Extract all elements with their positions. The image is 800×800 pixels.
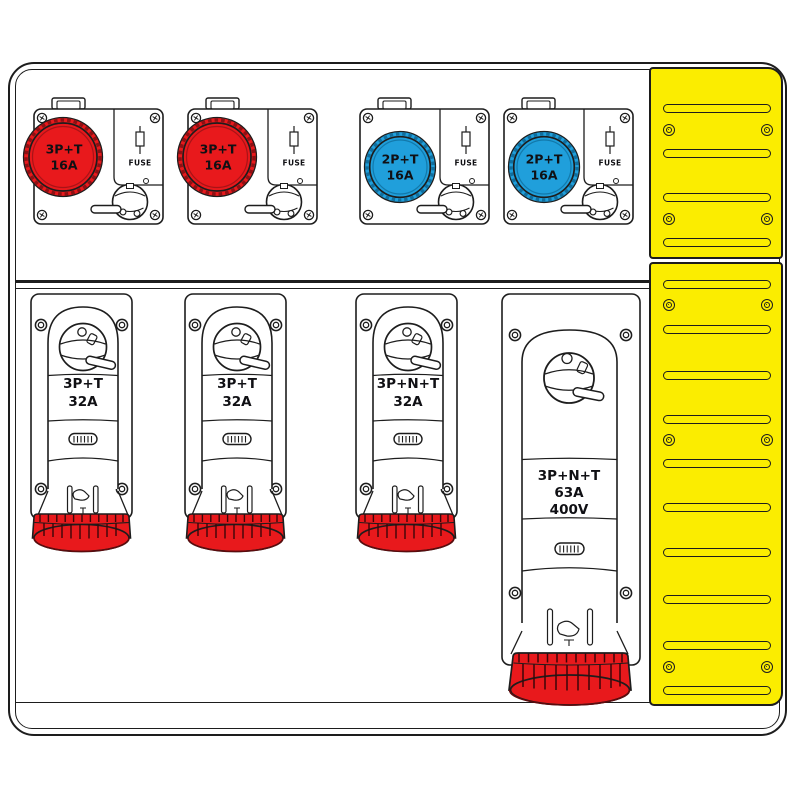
socket-unit-top-1: 3P+T16A FUSE	[33, 96, 164, 225]
panel-screw	[761, 661, 773, 673]
panel-screw	[663, 213, 675, 225]
panel-screw	[761, 213, 773, 225]
lid-seam-thick	[15, 280, 650, 283]
socket-unit-bottom-1: 3P+T32A	[30, 293, 133, 557]
panel-screw	[663, 661, 675, 673]
panel-screw	[663, 299, 675, 311]
panel-screw	[761, 124, 773, 136]
socket-rating-label: 3P+N+T63A400V	[538, 468, 600, 519]
interlocked-socket-artwork	[355, 293, 458, 557]
interlocked-socket-artwork	[184, 293, 287, 557]
socket-rating-label: 3P+T16A	[46, 142, 83, 173]
fuse-label: FUSE	[455, 159, 478, 168]
vent-slot	[663, 686, 771, 695]
socket-unit-top-2: 3P+T16A FUSE	[187, 96, 318, 225]
vent-slot	[663, 149, 771, 158]
vent-slot	[663, 595, 771, 604]
vent-slot	[663, 641, 771, 650]
fuse-label: FUSE	[599, 159, 622, 168]
vent-slot	[663, 503, 771, 512]
socket-rating-label: 3P+N+T32A	[377, 376, 439, 411]
vent-slot	[663, 415, 771, 424]
vent-slot	[663, 459, 771, 468]
distribution-board: 3P+T16A FUSE 3P+T16A FUSE 2P+T16A FUSE 2…	[0, 0, 800, 800]
vent-slot	[663, 548, 771, 557]
panel-screw	[663, 434, 675, 446]
interlocked-socket-artwork	[30, 293, 133, 557]
socket-rating-label: 3P+T32A	[63, 376, 103, 411]
fuse-label: FUSE	[129, 159, 152, 168]
panel-screw	[761, 434, 773, 446]
vent-slot	[663, 371, 771, 380]
panel-screw	[663, 124, 675, 136]
vent-slot	[663, 238, 771, 247]
panel-screw	[761, 299, 773, 311]
socket-unit-top-3: 2P+T16A FUSE	[359, 96, 490, 225]
socket-rating-label: 3P+T32A	[217, 376, 257, 411]
socket-unit-bottom-3: 3P+N+T32A	[355, 293, 458, 557]
vent-slot	[663, 280, 771, 289]
vent-slot	[663, 104, 771, 113]
vent-slot	[663, 325, 771, 334]
socket-unit-bottom-2: 3P+T32A	[184, 293, 287, 557]
fuse-label: FUSE	[283, 159, 306, 168]
vent-panel-lower	[649, 262, 783, 706]
socket-rating-label: 2P+T16A	[526, 152, 563, 183]
socket-rating-label: 2P+T16A	[382, 152, 419, 183]
socket-rating-label: 3P+T16A	[200, 142, 237, 173]
socket-unit-top-4: 2P+T16A FUSE	[503, 96, 634, 225]
lid-seam-thin	[15, 288, 650, 289]
vent-panel-upper	[649, 67, 783, 259]
vent-slot	[663, 193, 771, 202]
socket-unit-bottom-4: 3P+N+T63A400V	[501, 293, 641, 711]
